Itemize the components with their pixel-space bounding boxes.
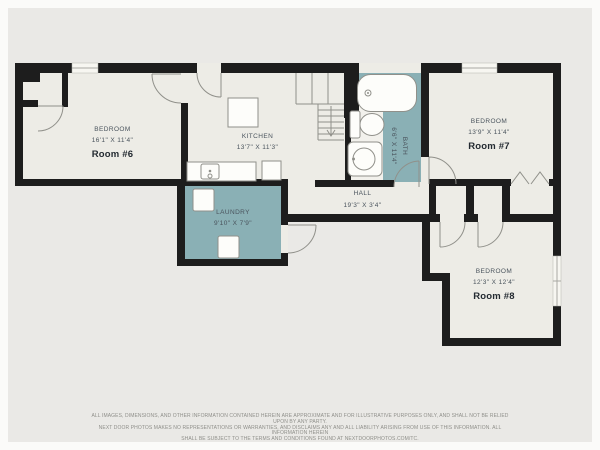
floor-plan-page: BEDROOM 16'1" X 11'4" Room #6 KITCHEN 13… — [0, 0, 600, 450]
wall-segment — [281, 214, 440, 222]
room-dims: 12'3" X 12'4" — [434, 277, 554, 288]
room-dims: 6'6" X 11'4" — [388, 111, 399, 181]
wall-segment — [315, 180, 394, 187]
room-name: LAUNDRY — [185, 207, 281, 218]
room-number: Room #8 — [434, 291, 554, 302]
wall-segment — [549, 179, 553, 186]
room-dims: 16'1" X 11'4" — [40, 135, 185, 146]
floor-plan-graphic — [0, 0, 600, 450]
room-name: BEDROOM — [434, 266, 554, 277]
room-name: BATH — [399, 111, 410, 181]
disclaimer-line: SHALL BE SUBJECT TO THE TERMS AND CONDIT… — [90, 437, 510, 443]
room-name: KITCHEN — [195, 131, 320, 142]
island-icon — [228, 98, 258, 127]
bath-label: BATH 6'6" X 11'4" — [388, 111, 410, 181]
wall-segment — [464, 214, 478, 222]
wall-segment — [221, 63, 345, 73]
door-arc-icon — [288, 225, 316, 253]
sink-icon — [348, 142, 382, 176]
disclaimer-text: ALL IMAGES, DIMENSIONS, AND OTHER INFORM… — [90, 414, 510, 443]
wall-segment — [177, 179, 185, 266]
window-icon — [462, 63, 497, 73]
wall-segment — [15, 63, 23, 186]
wall-segment — [20, 100, 38, 107]
room-dims: 19'3" X 3'4" — [300, 200, 425, 212]
counter-icon — [187, 162, 256, 181]
disclaimer-line: ALL IMAGES, DIMENSIONS, AND OTHER INFORM… — [90, 414, 510, 426]
toilet-icon — [350, 111, 384, 138]
wall-segment — [422, 214, 430, 273]
wall-segment — [281, 253, 288, 266]
wall-segment — [502, 214, 553, 222]
kitchen-label: KITCHEN 13'7" X 11'3" — [195, 131, 320, 153]
window-icon — [553, 256, 561, 306]
hall-label: HALL 19'3" X 3'4" — [300, 188, 425, 212]
room-dims: 9'10" X 7'9" — [185, 218, 281, 229]
wall-segment — [15, 63, 197, 73]
room-number: Room #7 — [429, 141, 549, 152]
wall-segment — [429, 186, 436, 222]
wall-segment — [442, 338, 561, 346]
room7-label: BEDROOM 13'9" X 11'4" Room #7 — [429, 116, 549, 152]
stove-icon — [262, 161, 281, 180]
room-name: HALL — [300, 188, 425, 200]
wall-segment — [281, 186, 288, 225]
room-number: Room #6 — [40, 149, 185, 160]
window-icon — [72, 63, 98, 73]
room6-label: BEDROOM 16'1" X 11'4" Room #6 — [40, 124, 185, 160]
laundry-label: LAUNDRY 9'10" X 7'9" — [185, 207, 281, 229]
dryer-icon — [218, 236, 239, 258]
room-name: BEDROOM — [40, 124, 185, 135]
room-dims: 13'9" X 11'4" — [429, 127, 549, 138]
room8-label: BEDROOM 12'3" X 12'4" Room #8 — [434, 266, 554, 302]
wall-segment — [62, 73, 68, 107]
wall-segment — [421, 63, 429, 157]
wall-segment — [177, 259, 288, 266]
room-dims: 13'7" X 11'3" — [195, 142, 320, 153]
wall-segment — [429, 179, 511, 186]
room-name: BEDROOM — [429, 116, 549, 127]
bathtub-icon — [358, 75, 417, 112]
